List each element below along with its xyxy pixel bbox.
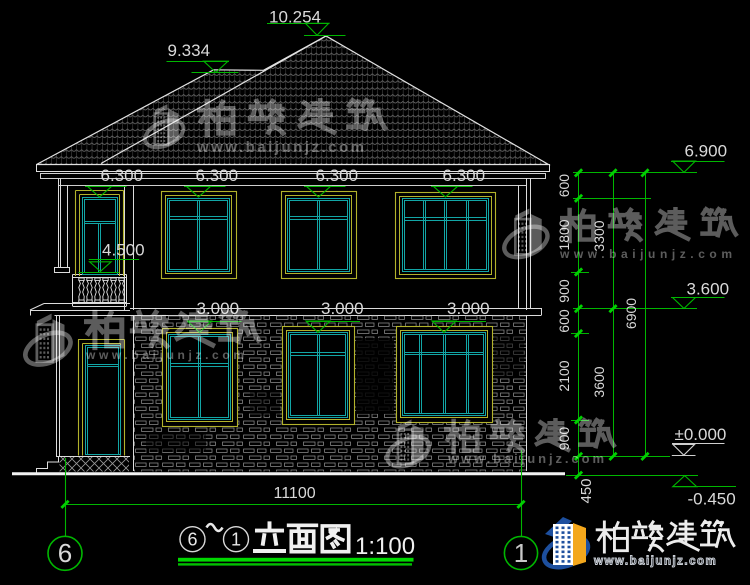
svg-text:600: 600 (556, 309, 572, 333)
svg-text:6900: 6900 (623, 298, 639, 329)
svg-text:900: 900 (556, 279, 572, 303)
svg-text:6.300: 6.300 (316, 166, 359, 185)
svg-text:1:100: 1:100 (355, 533, 415, 560)
svg-text:9.334: 9.334 (168, 41, 211, 60)
svg-text:6.300: 6.300 (443, 166, 486, 185)
svg-text:www.baijunjz.com: www.baijunjz.com (593, 556, 717, 568)
svg-text:1: 1 (514, 538, 528, 568)
svg-text:1: 1 (231, 530, 241, 550)
svg-text:600: 600 (556, 174, 572, 198)
svg-text:6.300: 6.300 (196, 166, 239, 185)
svg-text:450: 450 (578, 478, 595, 503)
svg-text:6.300: 6.300 (101, 166, 144, 185)
svg-text:4.500: 4.500 (102, 241, 145, 260)
svg-text:-0.450: -0.450 (688, 490, 736, 509)
svg-text:3.600: 3.600 (687, 280, 730, 299)
svg-text:6: 6 (187, 530, 197, 550)
svg-text:±0.000: ±0.000 (675, 425, 727, 444)
svg-text:3.000: 3.000 (321, 299, 364, 318)
svg-text:6.900: 6.900 (685, 142, 728, 161)
svg-text:2100: 2100 (556, 360, 572, 391)
svg-text:3.000: 3.000 (447, 299, 490, 318)
svg-text:3600: 3600 (591, 366, 607, 397)
svg-text:11100: 11100 (274, 485, 316, 502)
svg-text:6: 6 (58, 538, 72, 568)
